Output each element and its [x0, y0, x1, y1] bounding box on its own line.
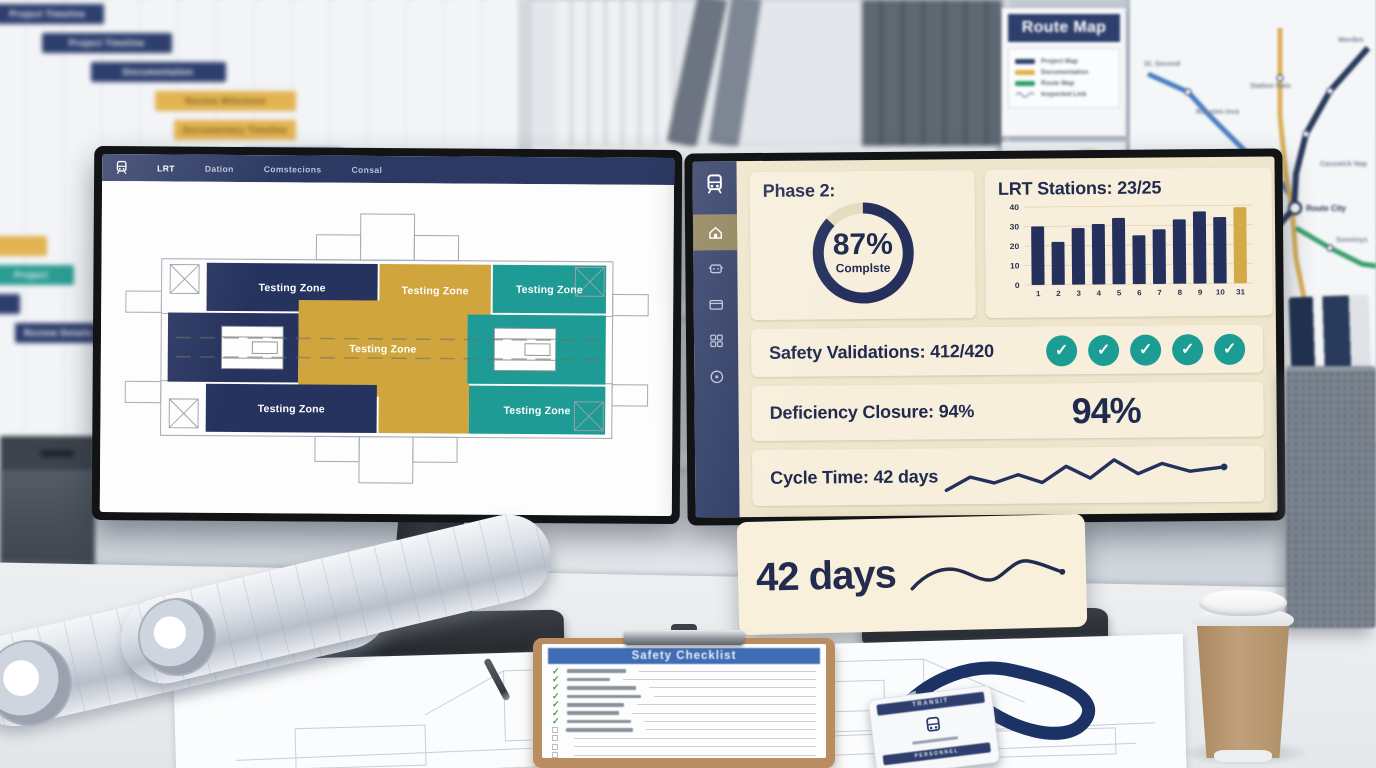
coffee-cup — [1192, 590, 1294, 768]
svg-text:20: 20 — [1010, 242, 1020, 251]
checklist-paper: Safety Checklist ✓✓✓✓✓✓✓ — [542, 644, 826, 758]
stations-bar-chart: 0102030401234567891031 — [998, 198, 1260, 304]
svg-text:2: 2 — [1056, 289, 1061, 298]
legend-row: Documentation — [1015, 69, 1113, 76]
svg-text:Rossten Inve: Rossten Inve — [1196, 109, 1240, 116]
svg-text:Sonninys: Sonninys — [1336, 237, 1368, 244]
sidebar-item-card[interactable] — [694, 286, 738, 322]
popup-sparkline — [905, 523, 1070, 623]
mesh-organizer — [1286, 366, 1376, 628]
ruled-line — [649, 687, 816, 688]
checklist-title: Safety Checklist — [548, 648, 820, 664]
safety-validations-card: Safety Validations: 412/420 ✓✓✓✓✓ — [751, 325, 1263, 377]
phase-percent: 87% — [833, 230, 893, 261]
deficiency-card: Deficiency Closure: 94% 94% — [751, 382, 1263, 441]
zone-label: Testing Zone — [259, 282, 326, 294]
left-app-navbar: LRTDationComstecionsConsal — [102, 154, 674, 185]
cycle-time-card: Cycle Time: 42 days — [752, 446, 1264, 506]
checklist-row: ✓ — [552, 667, 816, 675]
phase-progress-card: Phase 2: 87% Complste — [750, 170, 977, 320]
zone-label: Testing Zone — [349, 343, 416, 355]
help-icon — [708, 368, 725, 385]
checklist-row: ✓ — [552, 675, 816, 683]
stations-card-title: LRT Stations: 23/25 — [998, 177, 1259, 200]
check-icon: ✓ — [1046, 335, 1077, 366]
svg-text:Werden: Werden — [1338, 37, 1364, 44]
dashboard-screen: Phase 2: 87% Complste — [692, 156, 1277, 517]
checklist-item-text — [567, 703, 624, 707]
cycle-time-popup-card: 42 days — [737, 514, 1088, 635]
checklist-row — [552, 743, 816, 751]
checklist-row: ✓ — [552, 692, 816, 700]
checklist-row: ✓ — [552, 717, 816, 725]
clipboard-clip-bar — [624, 630, 744, 645]
checklist-item-text — [567, 669, 626, 673]
cycle-sparkline — [942, 452, 1232, 499]
popup-value: 42 days — [755, 552, 896, 600]
checkmark-icon: ✓ — [552, 717, 562, 726]
checklist-item-text — [567, 711, 619, 715]
ruled-line — [646, 729, 816, 730]
svg-text:40: 40 — [1010, 203, 1020, 212]
left-monitor: LRTDationComstecionsConsal — [92, 146, 683, 524]
phase-donut-chart: 87% Complste — [807, 197, 918, 308]
left-nav-item-dation[interactable]: Dation — [205, 163, 234, 173]
zone-label: Testing Zone — [402, 285, 469, 297]
svg-text:5: 5 — [1117, 289, 1122, 298]
ruled-line — [632, 713, 816, 714]
zone-label: Testing Zone — [516, 284, 583, 296]
empty-checkbox — [552, 727, 558, 733]
check-icon: ✓ — [1172, 334, 1203, 365]
badge-name-line — [912, 736, 958, 745]
left-nav-item-consal[interactable]: Consal — [351, 164, 382, 174]
checklist-row — [552, 726, 816, 734]
legend-label: Project Map — [1041, 58, 1078, 65]
svg-text:9: 9 — [1198, 288, 1203, 297]
hub-station — [1289, 202, 1301, 214]
phase-sublabel: Complste — [836, 261, 891, 275]
svg-text:0: 0 — [1015, 281, 1020, 290]
sidebar-item-help[interactable] — [694, 358, 738, 394]
modules-icon — [707, 332, 724, 349]
empty-checkbox — [552, 744, 558, 750]
svg-text:8: 8 — [1178, 288, 1183, 297]
card-icon — [707, 296, 724, 313]
svg-text:St. Second: St. Second — [1144, 61, 1180, 68]
svg-text:Casswick Nap: Casswick Nap — [1320, 161, 1367, 168]
sidebar-item-modules[interactable] — [694, 322, 738, 358]
left-monitor-screen: LRTDationComstecionsConsal — [100, 154, 674, 516]
squiggle-line-icon — [1015, 91, 1035, 98]
file-organizer-area — [1280, 290, 1376, 635]
left-nav-item-lrt[interactable]: LRT — [157, 163, 175, 173]
svg-text:4: 4 — [1097, 289, 1102, 298]
dashboard-main: Phase 2: 87% Complste — [736, 156, 1277, 517]
checklist-row — [552, 734, 816, 742]
svg-text:31: 31 — [1236, 288, 1246, 297]
train-logo-icon — [704, 173, 726, 200]
ruled-line — [654, 696, 816, 697]
ruled-line — [644, 721, 816, 722]
ruled-line — [574, 738, 816, 739]
svg-text:3: 3 — [1077, 289, 1082, 298]
legend-color-chip — [1015, 70, 1035, 75]
checklist-row: ✓ — [552, 709, 816, 717]
cup-lid-top — [1199, 590, 1287, 616]
sidebar-item-console[interactable] — [693, 250, 737, 286]
ruled-line — [574, 746, 816, 747]
legend-row: Route Map — [1015, 80, 1113, 87]
legend-color-chip — [1015, 59, 1035, 64]
cup-foot — [1214, 750, 1272, 762]
svg-text:6: 6 — [1137, 288, 1142, 297]
checklist-item-text — [567, 678, 610, 682]
id-badge: TRANSIT PERSONNEL — [868, 685, 1001, 768]
train-icon — [114, 160, 129, 175]
checklist-item-text — [566, 728, 633, 732]
svg-text:1: 1 — [1036, 289, 1041, 298]
legend-row: Inspected Link — [1015, 91, 1113, 98]
cycle-card-title: Cycle Time: 42 days — [770, 466, 938, 488]
route-map-title: Route Map — [1008, 14, 1120, 42]
legend-color-chip — [1015, 81, 1035, 86]
svg-text:10: 10 — [1216, 288, 1225, 297]
deficiency-value: 94% — [1071, 389, 1140, 432]
sidebar-item-home[interactable] — [693, 214, 737, 250]
route-map-poster: Route Map Project MapDocumentationRoute … — [1002, 8, 1126, 136]
legend-row: Project Map — [1015, 58, 1113, 65]
checklist-row: ✓ — [552, 701, 816, 709]
validation-checks: ✓✓✓✓✓ — [1046, 333, 1245, 366]
legend-label: Documentation — [1041, 69, 1088, 76]
ruled-line — [574, 755, 816, 756]
safety-card-title: Safety Validations: 412/420 — [769, 340, 994, 363]
svg-text:30: 30 — [1010, 223, 1020, 232]
checklist-item-text — [567, 720, 631, 724]
checklist-item-text — [567, 695, 641, 699]
zone-label: Testing Zone — [258, 403, 325, 415]
checklist-item-text — [567, 686, 636, 690]
check-icon: ✓ — [1214, 333, 1245, 364]
floorplan-canvas: Testing Zone Testing Zone Testing Zone T… — [100, 181, 674, 516]
ruled-line — [623, 679, 816, 680]
office-desk-scene: Project TimelineProject TimelineDocument… — [0, 0, 1376, 768]
svg-text:Station Nats: Station Nats — [1250, 83, 1291, 90]
right-monitor: Phase 2: 87% Complste — [684, 148, 1285, 525]
clipboard: Safety Checklist ✓✓✓✓✓✓✓ — [533, 638, 835, 768]
route-map-legend: Project MapDocumentationRoute MapInspect… — [1008, 48, 1120, 108]
binders-in-organizer — [1289, 295, 1372, 374]
check-icon: ✓ — [1130, 334, 1161, 365]
svg-text:7: 7 — [1158, 288, 1163, 297]
ruled-line — [639, 671, 816, 672]
svg-text:10: 10 — [1010, 262, 1020, 271]
empty-checkbox — [552, 752, 558, 758]
ruled-line — [637, 704, 816, 705]
checklist-row — [552, 751, 816, 759]
deficiency-card-title: Deficiency Closure: 94% — [770, 401, 975, 424]
home-icon — [707, 224, 724, 241]
legend-label: Route Map — [1041, 80, 1074, 87]
check-icon: ✓ — [1088, 334, 1119, 365]
left-nav-item-comstecions[interactable]: Comstecions — [264, 164, 322, 174]
console-icon — [707, 260, 724, 277]
zone-label: Testing Zone — [504, 405, 571, 417]
dashboard-sidebar — [692, 161, 739, 517]
cup-body — [1195, 626, 1291, 758]
empty-checkbox — [552, 735, 558, 741]
station-floorplan: Testing Zone Testing Zone Testing Zone T… — [117, 191, 657, 506]
hub-label: Route City — [1306, 204, 1347, 213]
checklist-row: ✓ — [552, 684, 816, 692]
legend-label: Inspected Link — [1041, 91, 1087, 98]
badge-train-icon — [922, 715, 944, 737]
stations-card: LRT Stations: 23/25 01020304012345678910… — [985, 167, 1273, 317]
